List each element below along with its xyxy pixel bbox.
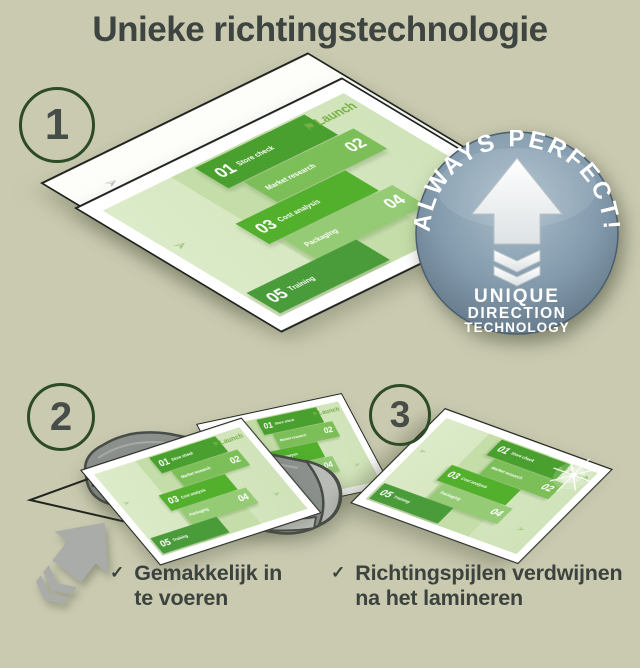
step-3-number: 3 <box>390 394 411 436</box>
block-number: 05 <box>261 287 293 305</box>
watermark-arrow-icon: ➢ <box>271 489 284 499</box>
block-label: Training <box>172 534 190 542</box>
block-label: Packaging <box>188 508 210 518</box>
launch-text: Launch <box>217 432 246 446</box>
block-number: 02 <box>227 455 243 466</box>
block-label: Cost analysis <box>275 199 323 223</box>
watermark-arrow-icon: ➢ <box>168 238 195 253</box>
block-number: 04 <box>487 508 505 519</box>
step-1-number: 1 <box>45 100 69 150</box>
watermark-arrow-icon: ➢ <box>120 498 133 508</box>
watermark-arrow-icon: ➢ <box>514 525 528 534</box>
block-label: Packaging <box>438 491 461 502</box>
launch-label: ⚑ Launch <box>210 432 246 448</box>
block-label: Training <box>392 495 411 504</box>
block-label: Cost analysis <box>459 477 488 490</box>
step-2-number: 2 <box>50 395 72 440</box>
checkmark-icon: ✓ <box>331 561 345 611</box>
launch-text: Launch <box>309 100 362 127</box>
step-1-marker: 1 <box>19 87 95 163</box>
benefit-bullet-easy-feed: ✓ Gemakkelijk in te voeren <box>110 561 315 611</box>
block-label: Packaging <box>302 228 341 248</box>
badge-line-technology: TECHNOLOGY <box>464 320 569 335</box>
block-number: 04 <box>379 193 411 211</box>
block-label: Training <box>286 276 318 293</box>
block-number: 01 <box>210 162 242 180</box>
page-root: { "title": "Unieke richtingstechnologie"… <box>0 0 640 640</box>
checkmark-icon: ✓ <box>110 561 124 611</box>
block-label: Market research <box>180 466 212 479</box>
block-label: Cost analysis <box>180 488 207 499</box>
block-label: Market research <box>489 466 523 480</box>
block-label: Store check <box>235 145 278 167</box>
block-label: Store check <box>509 452 535 464</box>
block-number: 03 <box>250 218 282 236</box>
benefit-text: Richtingspijlen verdwijnen na het lamine… <box>355 561 627 611</box>
step-3-marker: 3 <box>369 384 431 446</box>
benefit-text: Gemakkelijk in te voeren <box>134 561 299 611</box>
page-title: Unieke richtingstechnologie <box>0 10 640 50</box>
badge-line-unique: UNIQUE <box>474 286 560 307</box>
block-number: 04 <box>236 493 252 504</box>
watermark-arrow-icon: ➢ <box>416 447 430 456</box>
benefit-bullet-arrows-disappear: ✓ Richtingspijlen verdwijnen na het lami… <box>331 561 631 611</box>
step-2-marker: 2 <box>27 383 95 451</box>
always-perfect-badge: ALWAYS PERFECT! UNIQUE DIRECTION TECHNOL… <box>414 130 620 336</box>
block-number: 02 <box>340 137 372 155</box>
block-label: Store check <box>170 452 194 462</box>
